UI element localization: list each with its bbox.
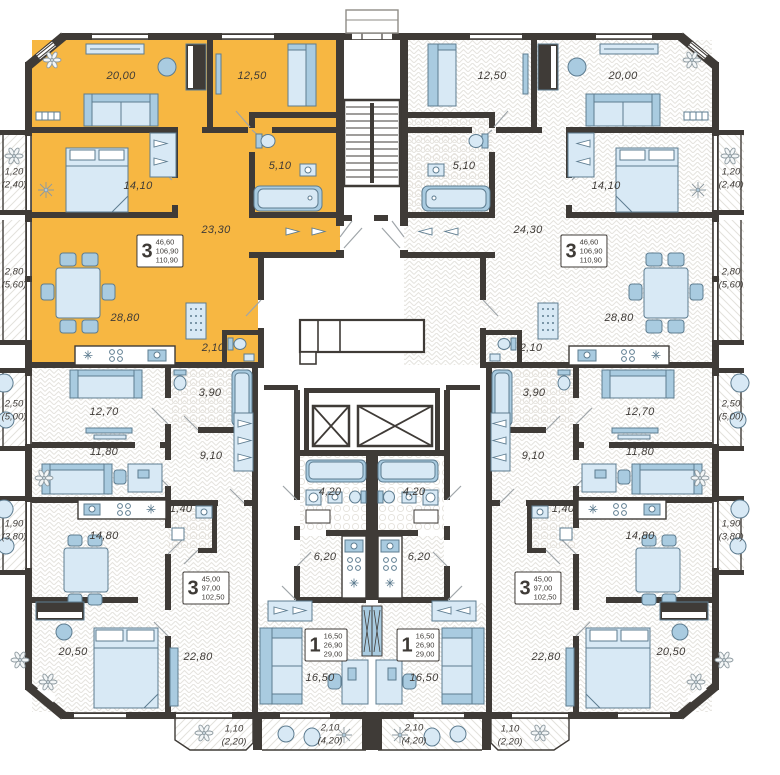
apartment-rooms-count: 3 [187, 578, 198, 598]
room-label-hall-ml: 9,10 [200, 450, 223, 462]
room-label-living-tl: 20,00 [106, 70, 135, 82]
room-label-kitchen-tr: 28,80 [604, 312, 633, 324]
apartment-rooms-count: 3 [565, 241, 576, 261]
total-area: 29,00 [324, 650, 343, 659]
room-label-living-sl: 16,50 [305, 672, 334, 684]
room-label-kitchen-mr: 14,80 [625, 530, 654, 542]
room-label-living-mr: 22,80 [531, 651, 560, 663]
balcony-label: (3,80) [2, 532, 27, 543]
area: 26,90 [324, 641, 343, 650]
room-label-kitchen-tl: 28,80 [110, 312, 139, 324]
room-label-bath-mr: 3,90 [523, 387, 546, 399]
balcony-label: (3,80) [719, 532, 744, 543]
apartment-info-studio-left[interactable]: 1 16,50 26,90 29,00 [305, 629, 348, 662]
room-label-bath-sr: 4,20 [403, 486, 426, 498]
room-label-bath-tr: 5,10 [453, 160, 476, 172]
balcony-label: (2,20) [222, 737, 247, 748]
balcony-label: (4,20) [402, 736, 427, 747]
total-area: 102,50 [534, 593, 557, 602]
balcony-label: 1,10 [225, 724, 244, 735]
room-label-bedroom3-ml: 20,50 [58, 646, 87, 658]
balcony-label: 2,50 [722, 399, 741, 410]
balcony-label: (5,00) [719, 412, 744, 423]
balcony-label: (2,40) [2, 180, 27, 191]
room-label-wc-tl: 2,10 [202, 342, 225, 354]
apartment-rooms-count: 1 [402, 635, 413, 655]
living-area: 16,50 [324, 632, 343, 641]
balcony-label: (4,20) [318, 736, 343, 747]
room-label-living-ml: 22,80 [183, 651, 212, 663]
balcony-label: (2,40) [719, 180, 744, 191]
balcony-label: 2,50 [5, 399, 24, 410]
room-label-bedroom1-ml: 12,70 [89, 406, 118, 418]
room-label-kitchen-sr: 6,20 [408, 551, 431, 563]
room-label-bedroom-small-tr: 12,50 [477, 70, 506, 82]
balcony-label: 1,10 [501, 724, 520, 735]
balcony-label: 1,20 [722, 167, 741, 178]
room-label-wc-ml: 1,40 [170, 503, 193, 515]
room-label-bedroom-small-tl: 12,50 [237, 70, 266, 82]
total-area: 102,50 [202, 593, 225, 602]
area: 26,90 [416, 641, 435, 650]
room-label-wc-tr: 2,10 [520, 342, 543, 354]
balcony-label: 2,80 [722, 267, 741, 278]
balcony-label: 2,10 [321, 723, 340, 734]
living-area: 45,00 [534, 575, 553, 584]
apartment-info-mid-right[interactable]: 3 45,00 97,00 102,50 [514, 572, 561, 605]
balcony-label: (5,00) [2, 412, 27, 423]
apartment-info-studio-right[interactable]: 1 16,50 26,90 29,00 [397, 629, 440, 662]
balcony-label: 2,10 [405, 723, 424, 734]
room-label-bath-ml: 3,90 [199, 387, 222, 399]
room-label-bedroom3-mr: 20,50 [656, 646, 685, 658]
balcony-label: (2,20) [498, 737, 523, 748]
floor-plan-canvas [0, 0, 780, 775]
room-label-bedroom2-ml: 11,80 [90, 446, 118, 458]
total-area: 29,00 [416, 650, 435, 659]
room-label-hall-mr: 9,10 [522, 450, 545, 462]
room-label-kitchen-ml: 14,80 [89, 530, 118, 542]
apartment-rooms-count: 1 [310, 635, 321, 655]
living-area: 46,60 [580, 238, 599, 247]
apartment-rooms-count: 3 [141, 241, 152, 261]
apartment-rooms-count: 3 [519, 578, 530, 598]
area: 106,90 [580, 247, 603, 256]
balcony-label: 1,90 [5, 519, 24, 530]
area: 97,00 [534, 584, 553, 593]
room-label-living-sr: 16,50 [409, 672, 438, 684]
balcony-label: 2,80 [5, 267, 24, 278]
room-label-bedroom-tl: 14,10 [123, 180, 152, 192]
balcony-label: 1,90 [722, 519, 741, 530]
room-label-kitchen-sl: 6,20 [314, 551, 337, 563]
room-label-living-tr: 20,00 [608, 70, 637, 82]
room-label-bedroom2-mr: 11,80 [626, 446, 654, 458]
balcony-label: (5,60) [719, 280, 744, 291]
area: 106,90 [156, 247, 179, 256]
room-label-bath-sl: 4,20 [319, 486, 342, 498]
apartment-info-top-left[interactable]: 3 46,60 106,90 110,90 [136, 235, 183, 268]
area: 97,00 [202, 584, 221, 593]
apartment-info-top-right[interactable]: 3 46,60 106,90 110,90 [560, 235, 607, 268]
staircase [344, 100, 400, 186]
total-area: 110,90 [580, 256, 602, 265]
apartment-info-mid-left[interactable]: 3 45,00 97,00 102,50 [182, 572, 229, 605]
room-label-bedroom-tr: 14,10 [591, 180, 620, 192]
living-area: 46,60 [156, 238, 175, 247]
living-area: 45,00 [202, 575, 221, 584]
balcony-label: (5,60) [2, 280, 27, 291]
room-label-bath-tl: 5,10 [269, 160, 292, 172]
balcony-label: 1,20 [5, 167, 24, 178]
room-label-wc-mr: 1,40 [552, 503, 575, 515]
room-label-hall-tl: 23,30 [201, 224, 230, 236]
living-area: 16,50 [416, 632, 435, 641]
floor-plan: 20,00 12,50 5,10 14,10 23,30 28,80 2,10 … [0, 0, 780, 775]
room-label-bedroom1-mr: 12,70 [625, 406, 654, 418]
room-label-hall-tr: 24,30 [513, 224, 542, 236]
elevator-shaft [304, 388, 440, 456]
total-area: 110,90 [156, 256, 178, 265]
